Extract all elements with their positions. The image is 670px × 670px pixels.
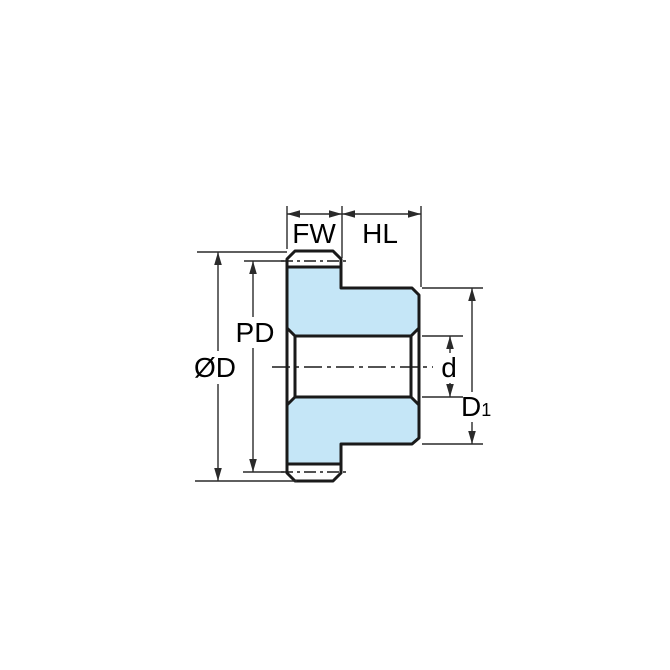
diagram-canvas: FW HL ØD PD	[0, 0, 670, 670]
hl-arrow-left	[342, 210, 355, 218]
fw-arrow-right	[329, 210, 342, 218]
od-arrow-top	[214, 252, 222, 265]
tooth-band-top	[287, 251, 341, 267]
fw-arrow-left	[287, 210, 300, 218]
gear-body-lower	[287, 397, 419, 464]
gear-body	[287, 267, 419, 464]
fw-label: FW	[292, 218, 336, 249]
od-label: ØD	[194, 352, 236, 383]
hl-label: HL	[362, 218, 398, 249]
dimension-hl: HL	[342, 206, 421, 287]
d1-arrow-bottom	[468, 431, 476, 444]
d-arrow-bottom	[446, 384, 454, 397]
d-label: d	[441, 352, 457, 383]
d1-label: D1	[461, 391, 491, 422]
pd-arrow-top	[249, 261, 257, 274]
bore	[272, 328, 433, 405]
pd-label: PD	[236, 317, 275, 348]
od-arrow-bottom	[214, 468, 222, 481]
d1-arrow-top	[468, 288, 476, 301]
dimension-d: d	[422, 336, 463, 397]
hl-arrow-right	[408, 210, 421, 218]
d1-label-subscript: 1	[481, 400, 491, 420]
pd-arrow-bottom	[249, 459, 257, 472]
d1-label-main: D	[461, 391, 481, 422]
gear-body-upper	[287, 267, 419, 336]
d-arrow-top	[446, 336, 454, 349]
gear-dimension-diagram: FW HL ØD PD	[0, 0, 670, 670]
